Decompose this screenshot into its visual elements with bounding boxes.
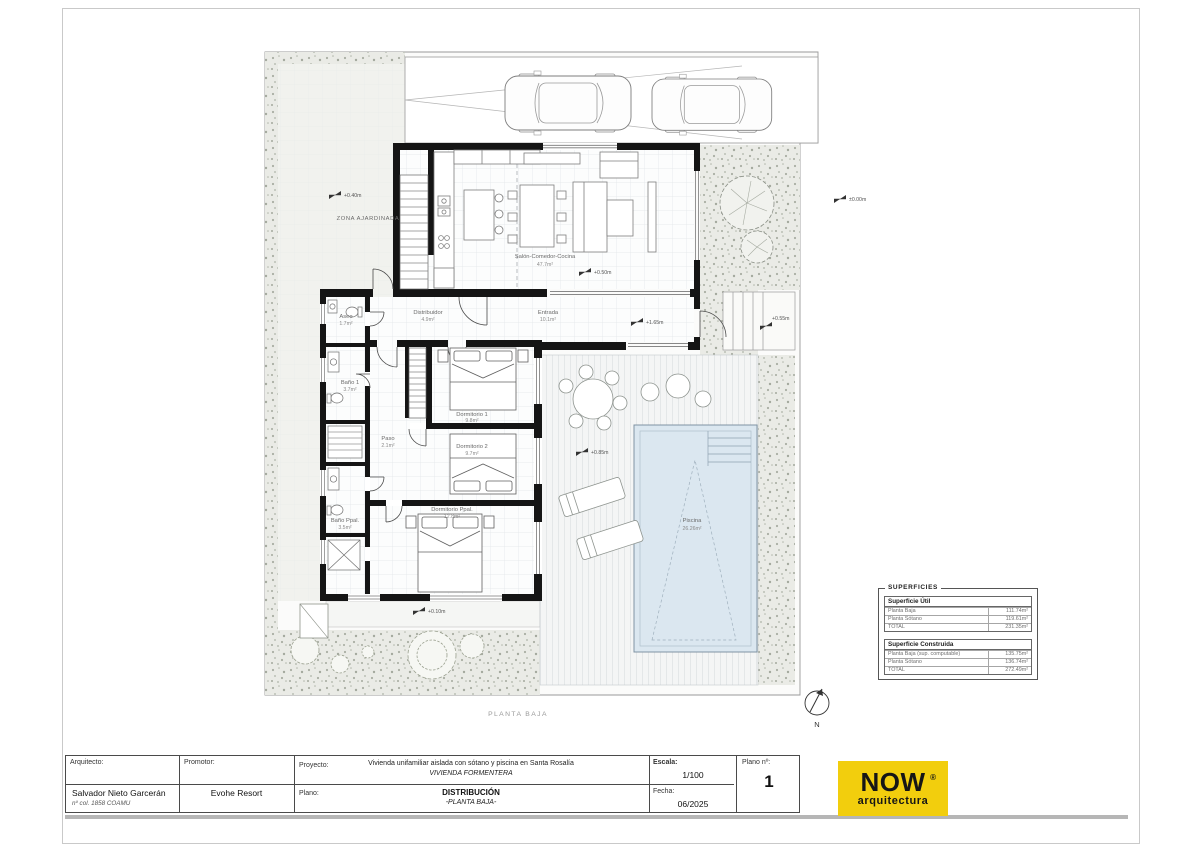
superficie-util-header: Superficie Útil	[885, 597, 1031, 607]
fecha-label: Fecha:	[653, 788, 674, 795]
area-living: 47.7m²	[537, 262, 553, 268]
car	[652, 74, 772, 135]
arquitecto-label: Arquitecto:	[70, 759, 103, 766]
plano-num-label: Plano nº:	[742, 759, 770, 766]
arquitecto-name: Salvador Nieto Garcerán	[72, 788, 166, 798]
superficie-construida-box: Superficie Construida Planta Baja (sup. …	[884, 639, 1032, 675]
escala-value: 1/100	[653, 770, 733, 780]
now-arquitectura-logo: NOW® arquitectura	[838, 761, 948, 816]
row-label: Planta Sótano	[885, 659, 988, 666]
level-living: +0.50m	[594, 270, 611, 276]
level-street: ±0.00m	[849, 197, 866, 203]
title-block: Arquitecto: Salvador Nieto Garcerán nº c…	[65, 755, 800, 813]
table-row: TOTAL 272.49m²	[885, 666, 1031, 674]
row-value: 119.61m²	[988, 616, 1031, 623]
plano-line1: DISTRIBUCIÓN	[296, 788, 646, 797]
escala-label: Escala:	[653, 759, 678, 766]
proyecto-line2: VIVIENDA FORMENTERA	[296, 770, 646, 777]
level-terrace: +0.85m	[591, 450, 608, 456]
row-value: 135.75m²	[988, 651, 1031, 658]
row-label: Planta Baja	[885, 608, 988, 615]
area-aseo: 1.7m²	[339, 321, 353, 327]
divider	[66, 784, 734, 785]
label-paso: Paso	[381, 436, 394, 442]
row-label: Planta Sótano	[885, 616, 988, 623]
table-row: Planta Baja (sup. computable) 135.75m²	[885, 650, 1031, 658]
superficies-table: SUPERFICIES Superficie Útil Planta Baja …	[878, 588, 1038, 680]
registered-mark-icon: ®	[930, 766, 936, 790]
area-bano1: 3.7m²	[343, 387, 357, 393]
floor-plan-canvas: N +0.40m +0.50m +1.65m +0.85m +0.55m +0.…	[0, 0, 1200, 849]
title-block-bottom-bar	[65, 815, 1128, 819]
logo-wordmark: NOW®	[860, 770, 925, 794]
superficies-title: SUPERFICIES	[885, 584, 941, 591]
area-piscina: 26.26m²	[682, 526, 701, 532]
promotor-label: Promotor:	[184, 759, 215, 766]
north-arrow-icon: N	[805, 689, 829, 729]
superficie-construida-header: Superficie Construida	[885, 640, 1031, 650]
label-piscina: Piscina	[683, 518, 702, 524]
promotor-name: Evohe Resort	[184, 788, 289, 798]
table-row: Planta Sótano 136.74m²	[885, 658, 1031, 666]
plano-num-value: 1	[738, 772, 800, 792]
pool	[634, 425, 757, 652]
area-paso: 2.1m²	[381, 443, 395, 449]
drawing-sheet: N +0.40m +0.50m +1.65m +0.85m +0.55m +0.…	[0, 0, 1200, 849]
area-distribuidor: 4.9m²	[421, 317, 435, 323]
label-bano1: Baño 1	[341, 380, 359, 386]
area-dormitorio2: 9.7m²	[465, 451, 479, 457]
row-label: TOTAL	[885, 624, 988, 631]
row-value: 231.35m²	[988, 624, 1031, 631]
label-dormitorio2: Dormitorio 2	[456, 444, 488, 450]
logo-word-text: NOW	[860, 767, 925, 797]
label-garden: ZONA AJARDINADA	[337, 216, 400, 222]
label-dormitorio-ppal: Dormitorio Ppal.	[431, 507, 473, 513]
car	[505, 71, 631, 135]
label-aseo: Aseo	[339, 314, 352, 320]
level-entrada: +1.65m	[646, 320, 663, 326]
proyecto-line1: Vivienda unifamiliar aislada con sótano …	[296, 760, 646, 767]
label-living: Salón-Comedor-Cocina	[515, 254, 576, 260]
driveway	[405, 57, 818, 143]
level-entry-steps: +0.55m	[772, 316, 789, 322]
superficie-util-box: Superficie Útil Planta Baja 111.74m² Pla…	[884, 596, 1032, 632]
row-label: TOTAL	[885, 667, 988, 674]
plano-line2: -PLANTA BAJA-	[296, 799, 646, 806]
table-row: Planta Sótano 119.61m²	[885, 615, 1031, 623]
area-dormitorio-ppal: 12.8m²	[444, 514, 460, 520]
table-row: TOTAL 231.35m²	[885, 623, 1031, 631]
fecha-value: 06/2025	[653, 799, 733, 809]
level-garden: +0.40m	[344, 193, 361, 199]
label-entrada: Entrada	[538, 310, 559, 316]
plan-caption: PLANTA BAJA	[488, 711, 548, 718]
area-dormitorio1: 9.8m²	[465, 418, 479, 424]
label-bano-ppal: Baño Ppal.	[331, 518, 360, 524]
row-label: Planta Baja (sup. computable)	[885, 651, 988, 658]
table-row: Planta Baja 111.74m²	[885, 607, 1031, 615]
divider	[736, 756, 737, 812]
row-value: 111.74m²	[988, 608, 1031, 615]
north-label: N	[814, 720, 819, 729]
row-value: 272.49m²	[988, 667, 1031, 674]
level-walkway: +0.10m	[428, 609, 445, 615]
row-value: 136.74m²	[988, 659, 1031, 666]
area-entrada: 10.1m²	[540, 317, 556, 323]
arquitecto-colegiado: nº col. 1858 COAMU	[72, 800, 130, 807]
area-bano-ppal: 3.5m²	[338, 525, 352, 531]
label-distribuidor: Distribuidor	[413, 310, 442, 316]
